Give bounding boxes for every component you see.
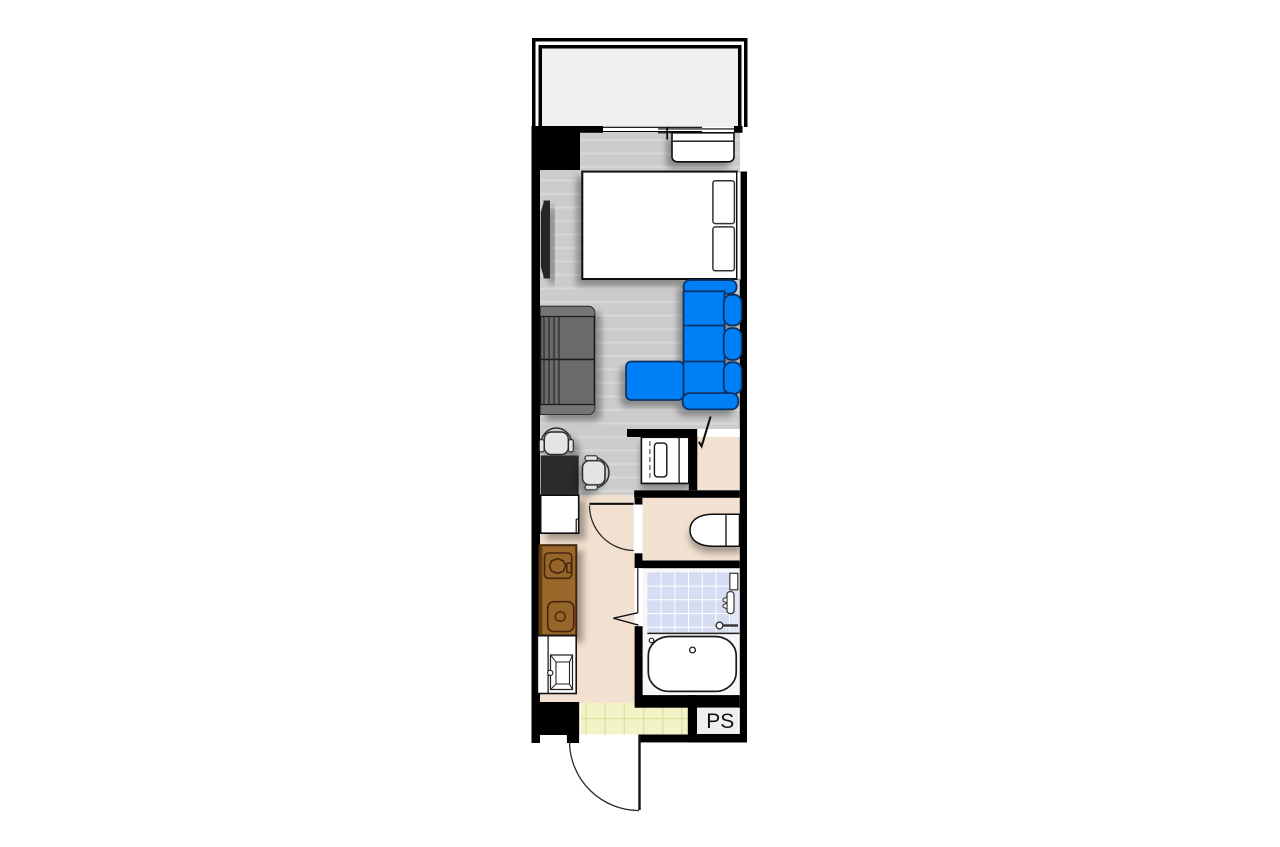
svg-text:PS: PS [706, 710, 734, 733]
